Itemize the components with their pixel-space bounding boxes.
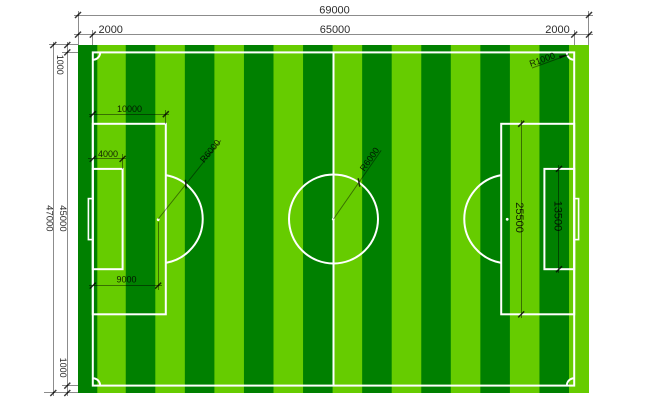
svg-text:45000: 45000 <box>57 205 68 231</box>
svg-text:2000: 2000 <box>545 24 569 36</box>
svg-text:9000: 9000 <box>116 274 136 284</box>
svg-text:1000: 1000 <box>55 55 65 75</box>
svg-text:10000: 10000 <box>117 104 142 114</box>
svg-text:69000: 69000 <box>319 4 350 16</box>
svg-text:47000: 47000 <box>43 205 54 231</box>
svg-text:4000: 4000 <box>98 149 118 159</box>
svg-text:2000: 2000 <box>98 24 122 36</box>
svg-text:1000: 1000 <box>58 358 68 378</box>
svg-text:25500: 25500 <box>513 202 525 233</box>
svg-text:65000: 65000 <box>320 24 351 36</box>
svg-text:13500: 13500 <box>551 201 563 232</box>
